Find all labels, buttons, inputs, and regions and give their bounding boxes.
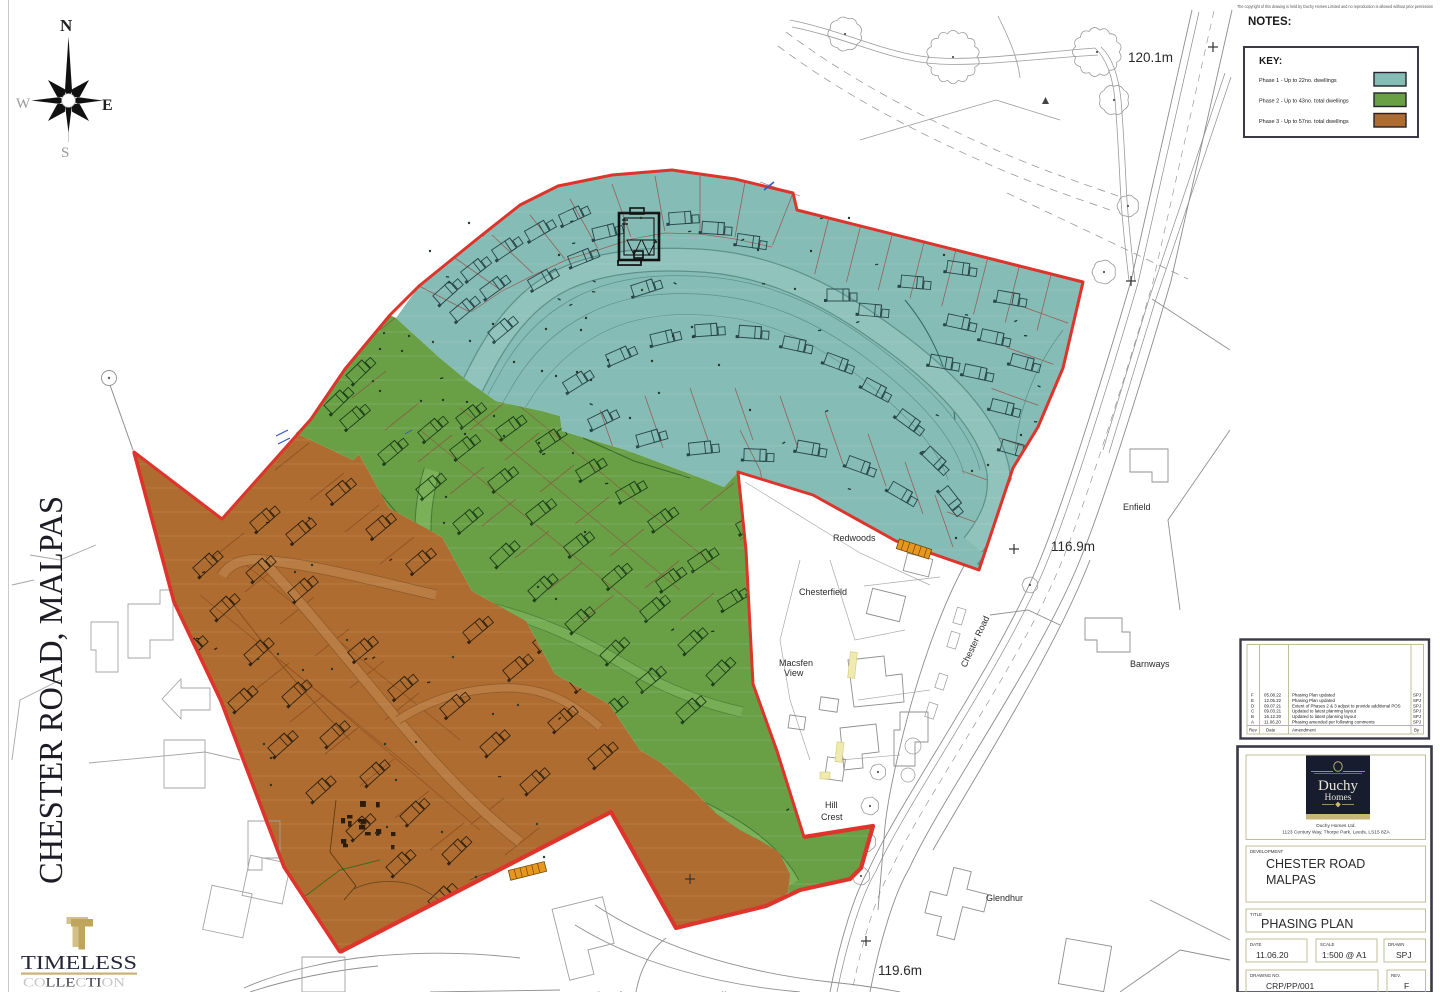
svg-text:D: D <box>1251 703 1254 708</box>
svg-text:Barnways: Barnways <box>1130 659 1170 669</box>
svg-text:Macsfen: Macsfen <box>779 658 813 668</box>
svg-text:Phasing Plan updated: Phasing Plan updated <box>1292 698 1336 703</box>
svg-text:E: E <box>102 97 113 114</box>
svg-text:CHESTER ROAD, MALPAS: CHESTER ROAD, MALPAS <box>33 496 70 884</box>
svg-text:COLLECTION: COLLECTION <box>23 975 126 990</box>
svg-text:KEY:: KEY: <box>1259 56 1282 67</box>
svg-text:Enfield: Enfield <box>1123 502 1151 512</box>
svg-text:E: E <box>1251 698 1254 703</box>
svg-text:F: F <box>1251 693 1254 698</box>
svg-text:Hill: Hill <box>825 800 838 810</box>
svg-text:By: By <box>1414 728 1420 733</box>
svg-text:05.08.22: 05.08.22 <box>1264 693 1282 698</box>
svg-text:Extent of Phases 2 & 3 adjust: Extent of Phases 2 & 3 adjust to provide… <box>1292 703 1401 708</box>
svg-text:N: N <box>60 16 73 35</box>
svg-text:Crest: Crest <box>821 812 843 822</box>
svg-text:SPJ: SPJ <box>1396 950 1412 960</box>
svg-text:Updated to latest planning lay: Updated to latest planning layout <box>1292 714 1357 719</box>
svg-text:Redwoods: Redwoods <box>833 533 876 543</box>
svg-text:PHASING PLAN: PHASING PLAN <box>1261 917 1353 931</box>
svg-text:SPJ: SPJ <box>1413 703 1421 708</box>
svg-text:1:500 @ A1: 1:500 @ A1 <box>1322 950 1367 960</box>
svg-text:11.06.20: 11.06.20 <box>1264 720 1281 725</box>
svg-text:SPJ: SPJ <box>1413 698 1421 703</box>
svg-text:NOTES:: NOTES: <box>1248 16 1291 28</box>
svg-text:SPJ: SPJ <box>1413 693 1421 698</box>
svg-text:Phase 2 - Up to 43no. total dw: Phase 2 - Up to 43no. total dwellings <box>1259 99 1349 105</box>
svg-text:Phase 3 - Up to 57no. total dw: Phase 3 - Up to 57no. total dwellings <box>1259 119 1349 125</box>
svg-text:W: W <box>16 96 31 112</box>
svg-text:119.6m: 119.6m <box>878 963 922 978</box>
svg-text:MALPAS: MALPAS <box>1266 873 1316 887</box>
svg-text:The copyright of this drawing: The copyright of this drawing is held by… <box>1237 4 1434 9</box>
svg-text:DRAWING NO.: DRAWING NO. <box>1250 973 1280 978</box>
svg-text:Amendment: Amendment <box>1292 728 1316 733</box>
svg-text:REV.: REV. <box>1391 973 1401 978</box>
svg-text:SCALE: SCALE <box>1320 942 1334 947</box>
svg-text:Chesterfield: Chesterfield <box>799 587 847 597</box>
svg-text:Duchy Homes Ltd.: Duchy Homes Ltd. <box>1316 823 1355 829</box>
svg-text:Phasing Plan updated: Phasing Plan updated <box>1292 693 1336 698</box>
svg-text:Updated to latest planning lay: Updated to latest planning layout <box>1292 709 1357 714</box>
svg-text:Duchy: Duchy <box>1318 778 1358 794</box>
svg-text:SPJ: SPJ <box>1413 709 1421 714</box>
svg-text:DRAWN: DRAWN <box>1388 942 1404 947</box>
svg-text:SPJ: SPJ <box>1413 714 1421 719</box>
svg-text:11.06.20: 11.06.20 <box>1256 950 1289 960</box>
svg-text:Phase 1 - Up to 22no. dwelling: Phase 1 - Up to 22no. dwellings <box>1259 78 1337 84</box>
svg-text:Glendhur: Glendhur <box>986 893 1023 903</box>
svg-text:View: View <box>784 668 804 678</box>
svg-text:12.05.22: 12.05.22 <box>1264 698 1282 703</box>
svg-text:Phasing amended per following: Phasing amended per following comments <box>1292 720 1376 725</box>
svg-text:S: S <box>61 145 69 161</box>
svg-text:16.12.20: 16.12.20 <box>1264 714 1282 719</box>
svg-text:B: B <box>1251 714 1254 719</box>
svg-text:Homes: Homes <box>1325 793 1352 803</box>
svg-text:116.9m: 116.9m <box>1051 539 1095 554</box>
svg-text:DEVELOPMENT: DEVELOPMENT <box>1250 849 1283 854</box>
svg-text:Rev: Rev <box>1249 728 1258 733</box>
svg-text:Date: Date <box>1266 728 1276 733</box>
svg-text:F: F <box>1404 981 1409 991</box>
svg-text:09.07.21: 09.07.21 <box>1264 703 1282 708</box>
svg-text:1123 Century Way, Thorpe Park,: 1123 Century Way, Thorpe Park, Leeds, LS… <box>1282 830 1390 836</box>
svg-text:TIMELESS: TIMELESS <box>21 952 137 974</box>
svg-text:09.03.21: 09.03.21 <box>1264 709 1282 714</box>
svg-text:CRP/PP/001: CRP/PP/001 <box>1266 981 1314 991</box>
svg-text:C: C <box>1251 709 1254 714</box>
svg-text:A: A <box>1251 720 1254 725</box>
svg-text:CHESTER ROAD: CHESTER ROAD <box>1266 857 1365 871</box>
svg-text:120.1m: 120.1m <box>1128 50 1173 65</box>
svg-text:SPJ: SPJ <box>1413 720 1421 725</box>
svg-text:DATE: DATE <box>1250 942 1261 947</box>
